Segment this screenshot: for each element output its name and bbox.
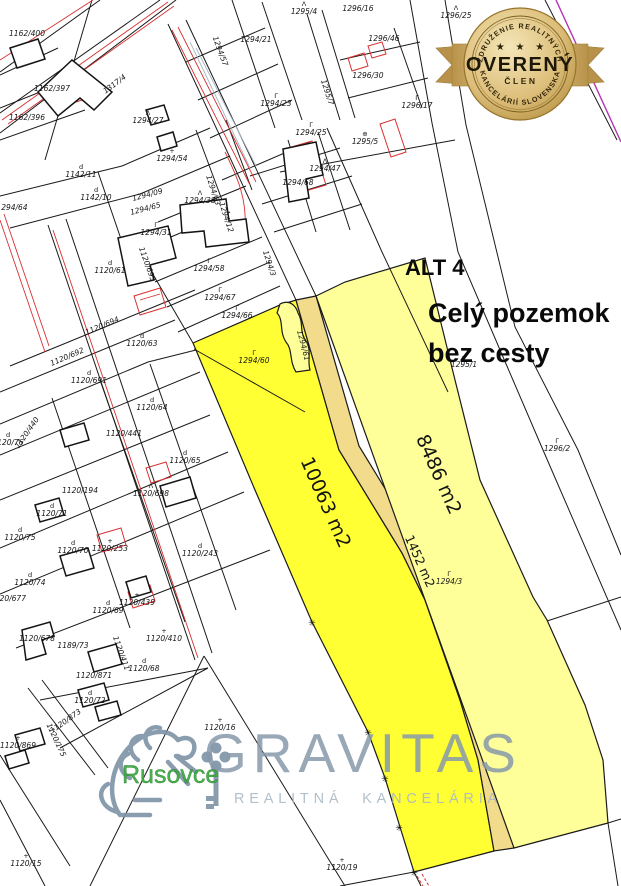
parcel-label: 1296/30 xyxy=(352,71,383,80)
parcel-symbol: Γ xyxy=(415,94,419,102)
boundary-star-icon: ✳ xyxy=(308,618,316,628)
parcel-symbol: + xyxy=(339,856,344,864)
parcel-symbol: d xyxy=(6,431,10,439)
parcel-symbol: Γ xyxy=(252,349,256,357)
badge-stars: ★ ★ ★ xyxy=(496,42,548,53)
parcel-label: 1296/25 xyxy=(440,11,471,20)
parcel-symbol: Γ xyxy=(555,437,559,445)
parcel-symbol: d xyxy=(71,539,75,547)
parcel-label: 1294/68 xyxy=(282,178,313,187)
parcel-label: 1162/400 xyxy=(9,29,45,38)
parcel-symbol: Γ xyxy=(154,221,158,229)
parcel-label: 1294/54 xyxy=(156,154,187,163)
parcel-label: 1294/23 xyxy=(260,99,291,108)
parcel-label: 1120/64 xyxy=(136,403,167,412)
parcel-label: 1120/243 xyxy=(182,549,218,558)
parcel-symbol: Γ xyxy=(447,570,451,578)
parcel-symbol: ⊕ xyxy=(362,130,367,138)
parcel-label: 1142/11 xyxy=(65,170,96,179)
parcel-label: 1294/31 xyxy=(140,228,171,237)
parcel-symbol: Γ xyxy=(309,121,313,129)
parcel-symbol: d xyxy=(50,502,54,510)
parcel-label: 1120/253 xyxy=(92,544,128,553)
parcel-label: 1142/10 xyxy=(80,193,111,202)
parcel-label: 1120/15 xyxy=(10,859,41,868)
parcel-symbol: d xyxy=(88,689,92,697)
parcel-label: 1294/57 xyxy=(211,35,230,68)
parcel-symbol: d xyxy=(150,396,154,404)
parcel-label: 1317/4 xyxy=(101,72,128,95)
parcel-label: 1296/46 xyxy=(368,34,399,43)
parcel-label: 1120/76 xyxy=(0,438,24,447)
parcel-symbol: + xyxy=(15,734,20,742)
parcel-label: 1294/67 xyxy=(204,293,235,302)
parcel-symbol: d xyxy=(198,542,202,550)
parcel-label: 1189/73 xyxy=(57,641,88,650)
parcel-label: 1294/58 xyxy=(193,264,224,273)
parcel-label: 1162/397 xyxy=(34,84,70,93)
parcel-symbol: Γ xyxy=(218,286,222,294)
parcel-symbol: d xyxy=(106,599,110,607)
parcel-label: 1296/2 xyxy=(544,444,571,453)
parcel-symbol: d xyxy=(28,571,32,579)
parcel-label: 1294/66 xyxy=(221,311,252,320)
parcel-symbol: Γ xyxy=(235,304,239,312)
parcel-label: 1294/21 xyxy=(240,35,271,44)
boundary-star-icon: ✳ xyxy=(410,868,418,878)
parcel-symbol: + xyxy=(107,537,112,545)
parcel-label: 1120/871 xyxy=(76,671,112,680)
parcel-label: 1120/61 xyxy=(94,266,125,275)
parcel-symbol: Λ xyxy=(302,0,307,8)
parcel-label: 1120/71 xyxy=(36,509,67,518)
parcel-symbol: d xyxy=(18,526,22,534)
parcel-label: 1120/75 xyxy=(4,533,35,542)
parcel-label: 1120/19 xyxy=(326,863,357,872)
watermark-brand: GRAVITAS xyxy=(204,722,522,784)
parcel-label: 1294/25 xyxy=(295,128,326,137)
parcel-label: 1294/3 xyxy=(436,577,463,586)
parcel-symbol: d xyxy=(79,163,83,171)
parcel-symbol: d xyxy=(108,259,112,267)
parcel-symbol: d xyxy=(94,186,98,194)
parcel-label: 1120/678 xyxy=(19,634,55,643)
parcel-symbol: d xyxy=(183,449,187,457)
parcel-symbol: Λ xyxy=(198,189,203,197)
parcel-symbol: d xyxy=(142,657,146,665)
badge-subtitle: ČLEN xyxy=(504,75,537,86)
parcel-label: 1294/47 xyxy=(309,164,340,173)
parcel-label: 1120/410 xyxy=(146,634,182,643)
parcel-symbol: d xyxy=(140,332,144,340)
parcel-label: 1120/68 xyxy=(128,664,159,673)
parcel-label: 1295/5 xyxy=(352,137,379,146)
parcel-label: 1295/4 xyxy=(291,7,318,16)
parcel-label: 1120/194 xyxy=(62,486,98,495)
overeny-badge: ZDRUŽENIE REALITNÝCH ★ ★ ★ OVERENÝ ČLEN … xyxy=(436,8,604,120)
cadastral-map-page: ✳ ✳ ✳ ✳ ✳ 1162/4001162/3971162/3961317/4… xyxy=(0,0,621,886)
annotation-title: ALT 4 xyxy=(405,255,465,280)
parcel-label: 1120/69 xyxy=(92,606,123,615)
parcel-symbol: d xyxy=(87,369,91,377)
parcel-label: 1296/16 xyxy=(342,4,373,13)
parcel-label: 1120/70 xyxy=(57,546,88,555)
cadastral-map: ✳ ✳ ✳ ✳ ✳ 1162/4001162/3971162/3961317/4… xyxy=(0,0,621,886)
alternative-annotation: ALT 4 Celý pozemok bez cesty xyxy=(405,255,611,368)
parcel-symbol: Γ xyxy=(207,257,211,265)
parcel-label: 1120/691 xyxy=(71,376,107,385)
parcel-label: 1162/396 xyxy=(9,113,45,122)
watermark-location: Rusovce xyxy=(122,761,219,789)
parcel-label: 1120/63 xyxy=(126,339,157,348)
parcel-label: 1120/441 xyxy=(106,429,142,438)
parcel-label: 1120/439 xyxy=(119,598,155,607)
parcel-label: 1120/698 xyxy=(133,489,169,498)
parcel-label: 1294/3 xyxy=(261,249,278,277)
parcel-label: 1120/869 xyxy=(0,741,36,750)
parcel-label: 1120/72 xyxy=(74,696,105,705)
boundary-star-icon: ✳ xyxy=(395,823,403,833)
parcel-symbol: Γ xyxy=(274,92,278,100)
parcel-symbol: + xyxy=(134,591,139,599)
parcel-label: 1296/17 xyxy=(401,101,432,110)
parcel-label: 1120/677 xyxy=(0,594,26,603)
parcel-symbol: Λ xyxy=(454,4,459,12)
parcel-label: 1294/60 xyxy=(238,356,269,365)
parcel-label: 1294/64 xyxy=(0,203,28,212)
parcel-symbol: Λ xyxy=(149,482,154,490)
watermark-tagline: REALITNÁ KANCELÁRIA xyxy=(234,790,502,807)
parcel-symbol: + xyxy=(169,147,174,155)
parcel-symbol: + xyxy=(161,627,166,635)
parcel-label: 1120/74 xyxy=(14,578,45,587)
parcel-label: 1295/7 xyxy=(319,78,336,106)
parcel-label: 1120/694 xyxy=(84,314,121,336)
parcel-symbol: Λ xyxy=(323,157,328,165)
parcel-label: 1120/65 xyxy=(169,456,200,465)
parcel-label: 1120/175 xyxy=(45,722,68,759)
annotation-line2: bez cesty xyxy=(428,338,550,368)
parcel-symbol: Λ xyxy=(146,109,151,117)
parcel-label: 1294/27 xyxy=(132,116,163,125)
annotation-line1: Celý pozemok xyxy=(428,298,611,328)
parcel-symbol: + xyxy=(23,852,28,860)
